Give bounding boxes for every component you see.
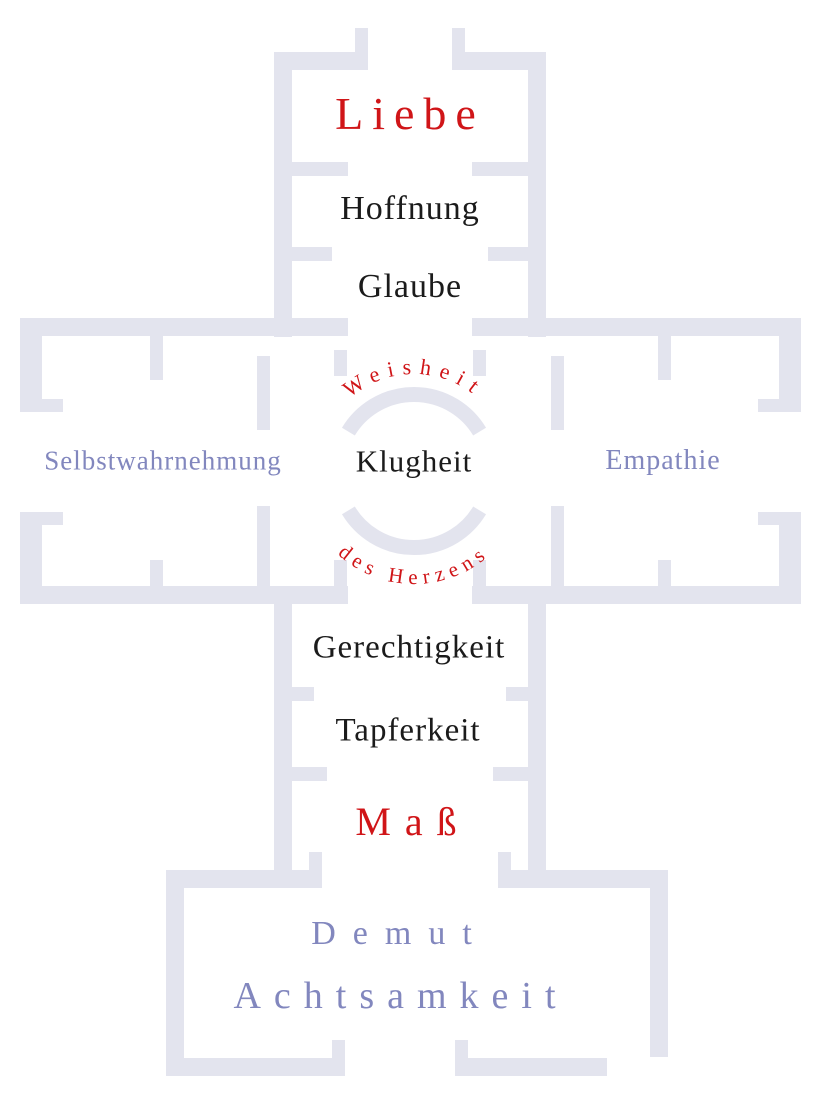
wall-segment <box>42 399 63 412</box>
wall-segment <box>650 870 668 1057</box>
wall-segment <box>506 687 528 701</box>
wall-segment <box>42 512 63 525</box>
wall-segment <box>658 560 671 604</box>
wall-segment <box>332 1040 345 1058</box>
wall-segment <box>488 247 528 261</box>
wall-segment <box>498 852 511 870</box>
label-empathie: Empathie <box>605 447 720 475</box>
wall-segment <box>758 512 779 525</box>
wall-segment <box>779 318 801 412</box>
label-hoffnung: Hoffnung <box>340 192 480 226</box>
wall-segment <box>658 336 671 380</box>
label-gerechtigkeit: Gerechtigkeit <box>313 632 506 665</box>
wall-segment <box>355 28 368 70</box>
label-tapferkeit: Tapferkeit <box>335 715 480 748</box>
wall-segment <box>292 247 332 261</box>
wall-segment <box>455 1040 468 1058</box>
label-klugheit: Klugheit <box>356 446 473 477</box>
label-selbstwahrnehmung: Selbstwahrnehmung <box>44 448 281 475</box>
wall-segment <box>455 1058 607 1076</box>
label-glaube: Glaube <box>358 270 462 304</box>
wall-segment <box>309 852 322 870</box>
label-achtsamkeit: Achtsamkeit <box>233 977 568 1015</box>
wall-segment <box>472 162 528 176</box>
church-floor-plan-diagram: Weisheit des Herzens Liebe Hoffnung Glau… <box>0 0 821 1103</box>
label-mass: Maß <box>355 802 470 842</box>
wall-segment <box>452 28 465 70</box>
ring-top-arc <box>348 394 479 431</box>
wall-segment <box>758 399 779 412</box>
wall-segment <box>292 767 327 781</box>
wall-segment <box>20 318 42 412</box>
label-liebe: Liebe <box>335 91 485 137</box>
label-demut: Demut <box>311 917 489 951</box>
wall-segment <box>292 687 314 701</box>
wall-segment <box>166 870 184 1076</box>
wall-segment <box>274 52 292 337</box>
wall-segment <box>166 870 322 888</box>
wall-segment <box>150 560 163 604</box>
wall-segment <box>166 1058 345 1076</box>
wall-segment <box>150 336 163 380</box>
wall-segment <box>528 604 546 870</box>
wall-segment <box>528 52 546 337</box>
wall-segment <box>292 162 348 176</box>
wall-segment <box>779 512 801 604</box>
wall-segment <box>493 767 528 781</box>
ring-bottom-arc <box>348 510 479 547</box>
wall-segment <box>498 870 668 888</box>
wall-segment <box>274 604 292 870</box>
wall-segment <box>20 512 42 604</box>
